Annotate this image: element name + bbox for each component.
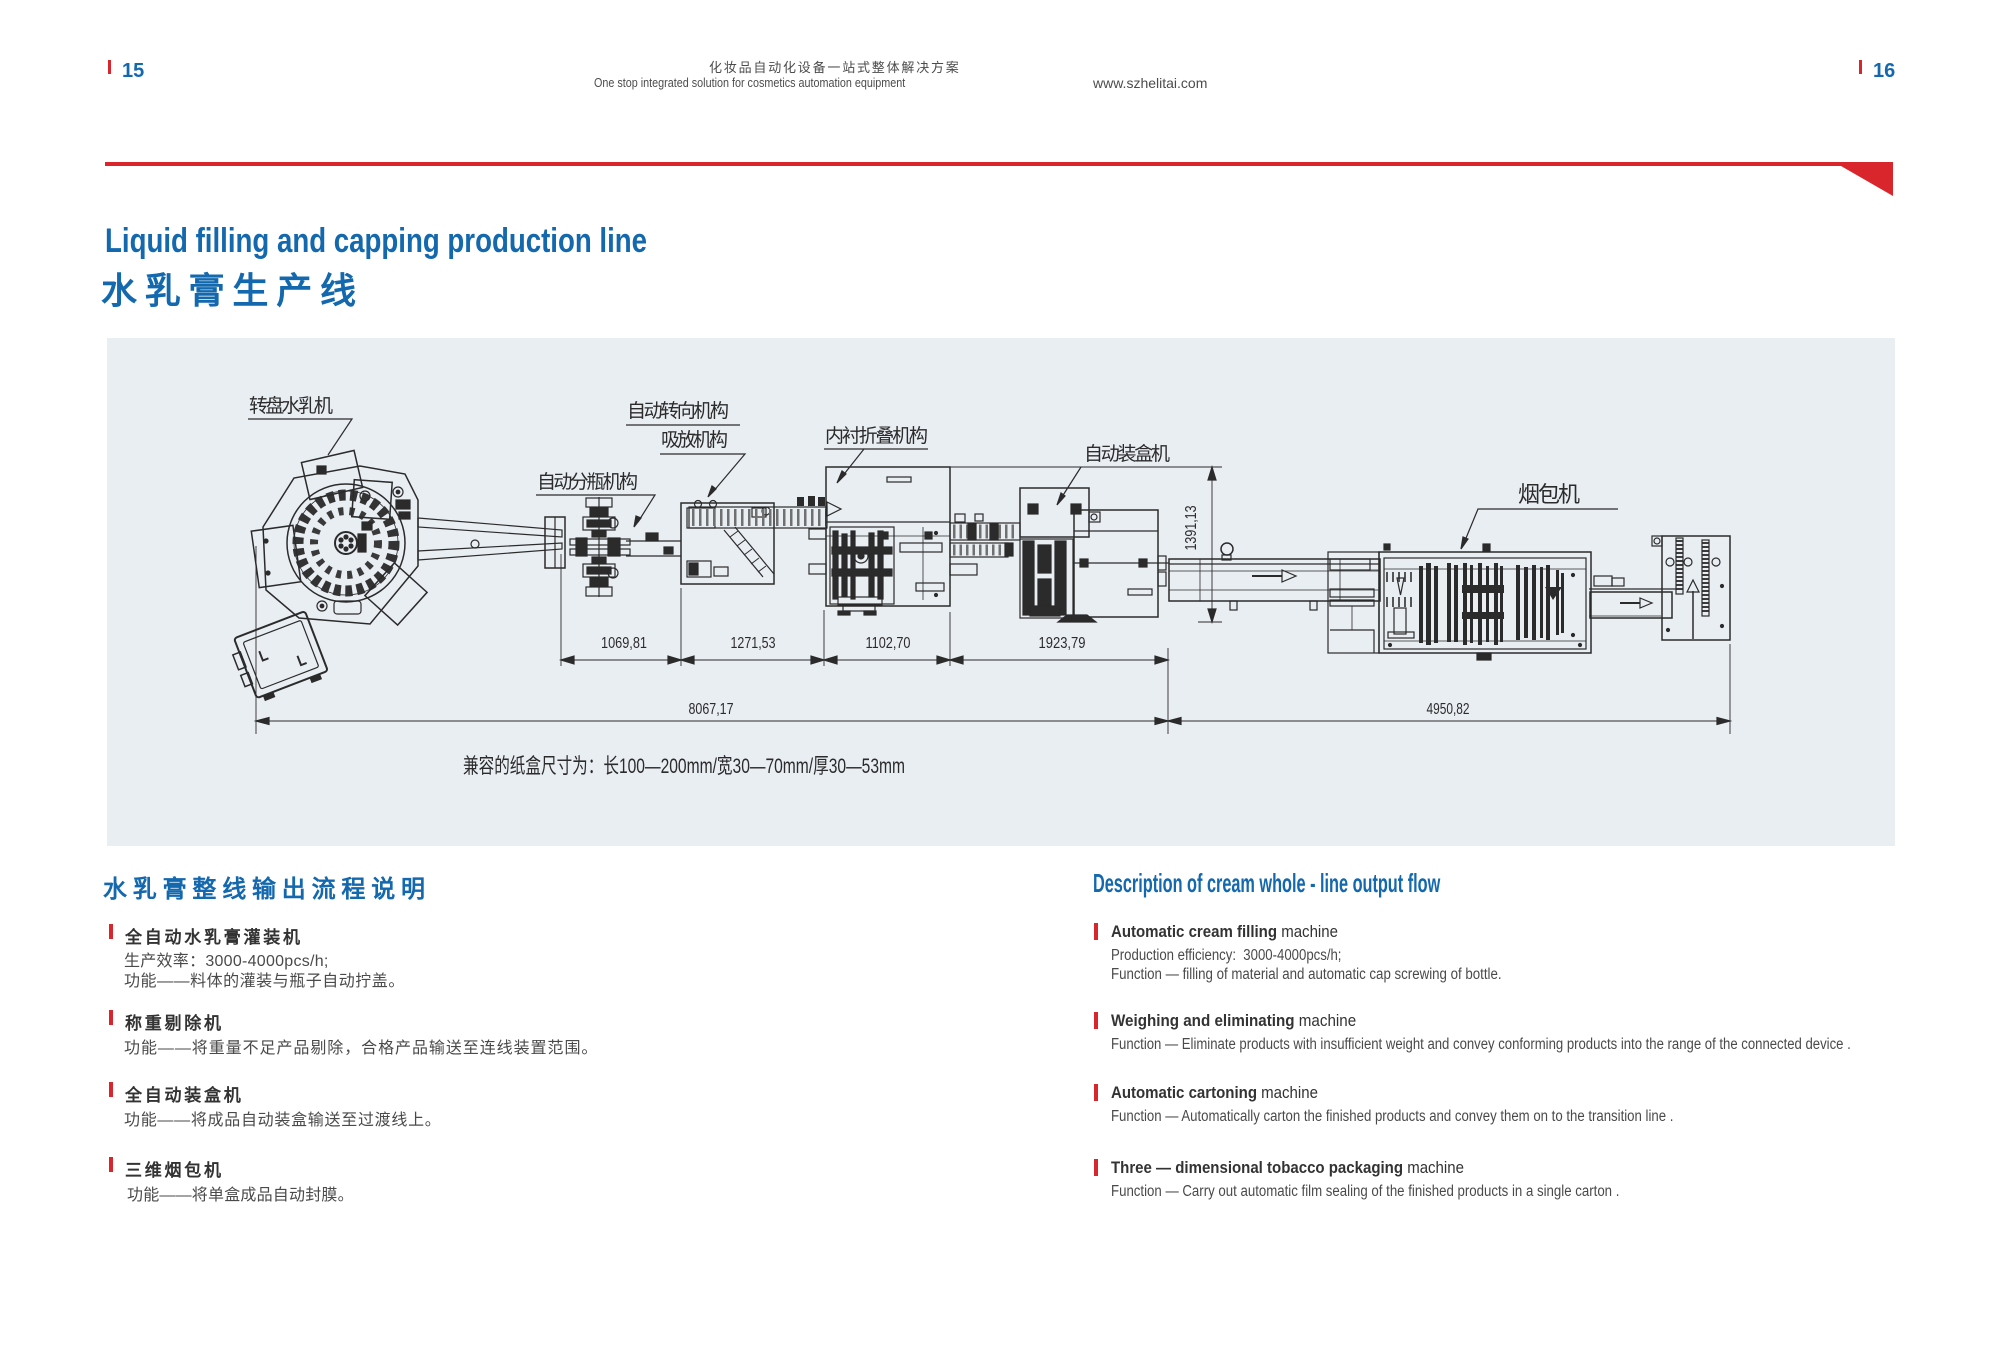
- svg-text:1271,53: 1271,53: [731, 635, 776, 652]
- svg-text:8067,17: 8067,17: [689, 701, 734, 718]
- svg-text:1391,13: 1391,13: [1183, 505, 1200, 550]
- svg-text:烟包机: 烟包机: [1518, 482, 1580, 507]
- svg-text:4950,82: 4950,82: [1427, 701, 1470, 718]
- svg-text:内衬折叠机构: 内衬折叠机构: [825, 425, 928, 447]
- svg-text:1923,79: 1923,79: [1039, 635, 1086, 652]
- svg-text:1102,70: 1102,70: [866, 635, 911, 652]
- svg-text:自动装盒机: 自动装盒机: [1084, 443, 1170, 465]
- svg-text:转盘水乳机: 转盘水乳机: [249, 395, 333, 417]
- svg-text:1069,81: 1069,81: [601, 635, 647, 652]
- svg-text:自动转向机构: 自动转向机构: [627, 400, 729, 422]
- svg-text:兼容的纸盒尺寸为：长100—200mm/宽30—70mm/厚: 兼容的纸盒尺寸为：长100—200mm/宽30—70mm/厚30—53mm: [463, 755, 905, 778]
- svg-text:自动分瓶机构: 自动分瓶机构: [537, 471, 638, 493]
- svg-text:吸放机构: 吸放机构: [661, 429, 728, 451]
